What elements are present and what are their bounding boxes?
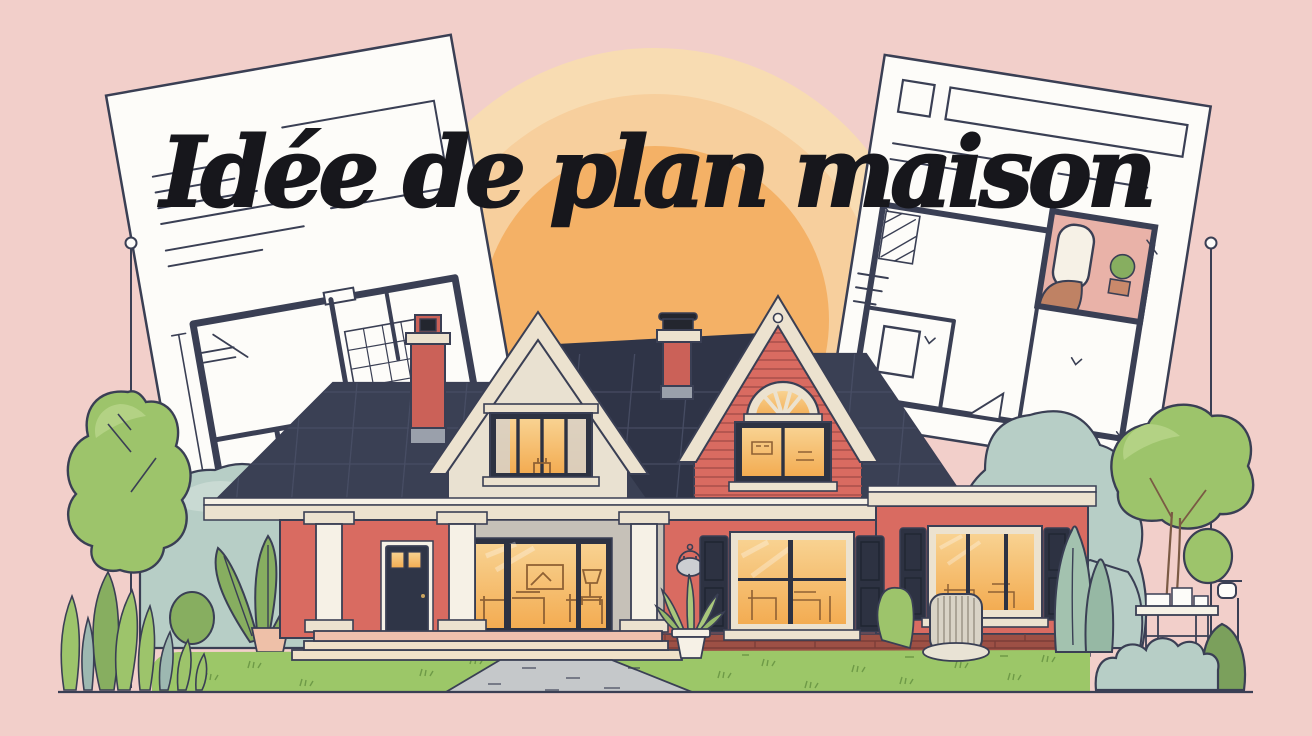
pin-left-ring xyxy=(126,238,137,249)
curtain-right xyxy=(567,419,586,473)
curtain-left xyxy=(496,419,510,473)
table-item-box xyxy=(1172,588,1192,607)
sconce-shade xyxy=(677,558,703,576)
door-pane-left xyxy=(391,552,404,568)
tree-right-lower-canopy xyxy=(1184,529,1232,583)
pin-right-ring xyxy=(1206,238,1217,249)
chair-seat xyxy=(923,643,989,661)
wing-fascia-top xyxy=(868,486,1096,492)
wing-window xyxy=(900,526,1070,627)
leaf-blob xyxy=(170,592,214,644)
gable-left-sill xyxy=(483,477,599,486)
front-door xyxy=(381,541,433,634)
door-pane-right xyxy=(408,552,421,568)
table-top xyxy=(1136,606,1218,615)
chimney-center-cap xyxy=(657,330,701,342)
gable-left-cornice xyxy=(484,404,598,413)
chimney-left xyxy=(406,315,450,444)
step-top xyxy=(314,631,662,641)
sliding-door-glass xyxy=(476,544,606,628)
front-steps xyxy=(292,631,682,660)
table-item-box xyxy=(1146,594,1170,607)
chimney-left-cap xyxy=(406,333,450,344)
agave-pot-rim xyxy=(672,629,710,637)
main-fascia-top xyxy=(204,498,976,505)
wing-fascia xyxy=(868,492,1096,506)
step-middle xyxy=(304,641,668,650)
chimney-left-base xyxy=(410,428,446,444)
step-bottom xyxy=(292,650,682,660)
door-knob xyxy=(421,594,425,598)
sliding-glass-door xyxy=(470,538,612,632)
chair-side-bush xyxy=(877,588,913,648)
chimney-center-base xyxy=(661,386,693,399)
main-window xyxy=(700,532,884,640)
gable-right-sill xyxy=(729,482,837,491)
illustration-canvas: Idée de plan maison xyxy=(0,0,1312,736)
main-window-sill xyxy=(724,630,860,640)
scene-illustration xyxy=(0,0,1312,736)
chimney-center-stack xyxy=(663,342,691,388)
lamp-head xyxy=(1218,583,1236,598)
page-title: Idée de plan maison xyxy=(160,116,1151,229)
chimney-left-stack xyxy=(411,344,445,430)
agave-pot xyxy=(677,637,705,658)
gable-right-apex-detail xyxy=(774,314,783,323)
